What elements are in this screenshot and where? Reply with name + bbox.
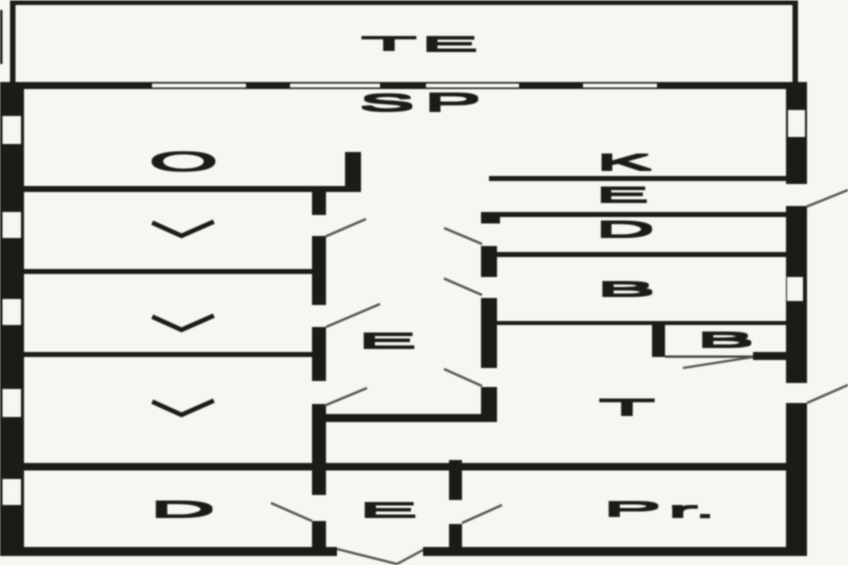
svg-text:T: T <box>361 34 417 54</box>
svg-text:r: r <box>667 499 697 521</box>
svg-text:T: T <box>599 395 656 420</box>
svg-text:B: B <box>697 328 755 351</box>
svg-text:D: D <box>150 497 215 522</box>
svg-text:E: E <box>358 329 417 353</box>
svg-text:B: B <box>597 278 656 300</box>
svg-text:E: E <box>359 499 418 521</box>
svg-text:O: O <box>149 146 218 177</box>
svg-text:D: D <box>596 217 655 242</box>
svg-text:K: K <box>596 150 651 175</box>
svg-text:P: P <box>603 498 661 520</box>
svg-text:P: P <box>424 89 481 117</box>
svg-text:S: S <box>359 90 415 116</box>
svg-text:E: E <box>596 183 649 206</box>
svg-text:E: E <box>421 33 478 55</box>
